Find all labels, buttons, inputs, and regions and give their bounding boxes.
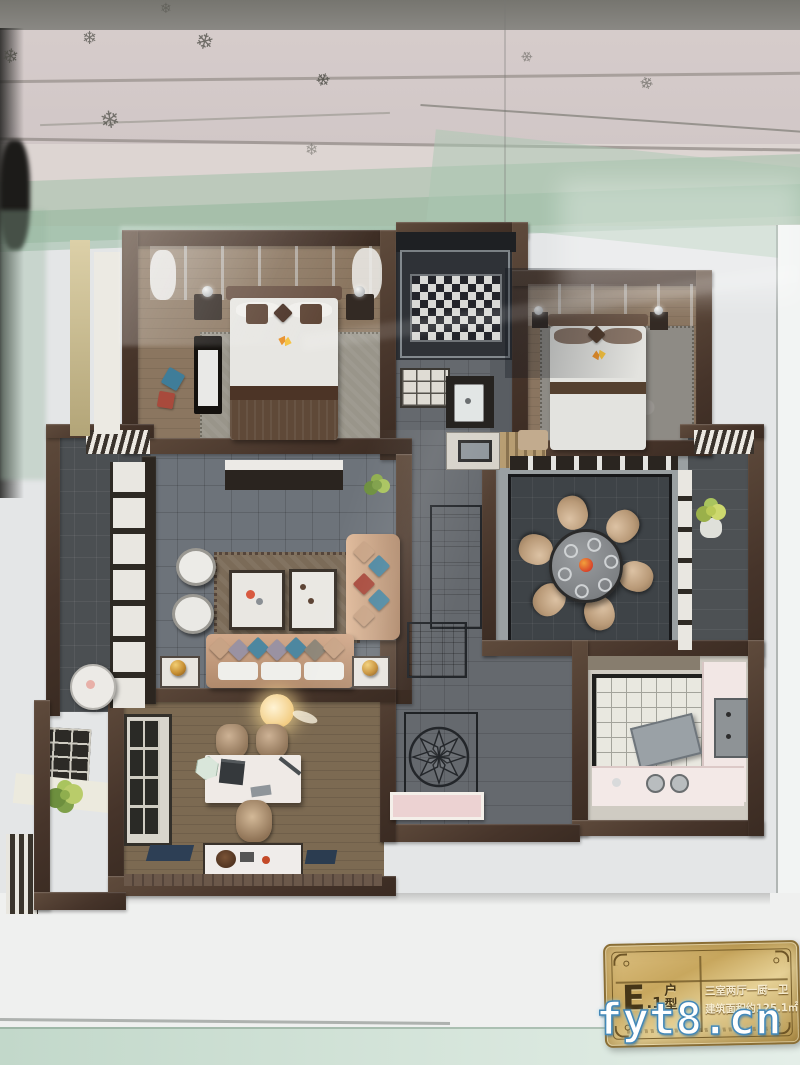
wall: [122, 438, 412, 454]
navy-storage: [305, 850, 337, 864]
bed-foot-blanket: [230, 400, 338, 440]
wall: [108, 688, 124, 892]
case-right-edge-line: [776, 225, 778, 945]
foyer-floor: [490, 650, 572, 830]
glass-joint-line: [504, 0, 506, 225]
potted-plant: [706, 506, 716, 516]
picture-frame: [458, 440, 492, 462]
bed-pillow-brown: [300, 304, 322, 324]
hall-tile-panel: [430, 505, 482, 629]
stove-burner: [646, 774, 665, 793]
round-side-table: [172, 594, 214, 634]
snowflake-icon: ❄: [98, 106, 122, 133]
kitchen-cabinet-strip: [588, 656, 700, 670]
checkerboard-tile: [410, 274, 502, 342]
faucet: [465, 398, 471, 404]
wall: [572, 640, 588, 836]
utility-window: [400, 368, 450, 408]
kitchen-counter-band: [510, 456, 678, 470]
louver-vent: [694, 430, 754, 454]
plaque-corner-ornament: [771, 950, 789, 964]
balcony-window-ladder-frame: [110, 462, 145, 708]
desk-chair: [256, 724, 288, 758]
navy-storage: [146, 845, 194, 861]
table-lamp: [354, 286, 365, 297]
table-decor: [300, 584, 306, 590]
table-lamp: [202, 286, 213, 297]
wall: [380, 230, 396, 460]
snowflake-icon: ❄: [305, 142, 318, 158]
wall: [46, 424, 60, 716]
study-window-panes: [130, 720, 160, 834]
wall: [748, 640, 764, 836]
place-setting: [586, 536, 603, 553]
potted-plant: [372, 480, 382, 490]
nightstand: [194, 294, 222, 320]
stove-burner: [670, 774, 689, 793]
case-left-green-strip: [0, 210, 46, 480]
bathroom-top-band: [396, 232, 516, 252]
watermark-text: fyt8.cn: [596, 994, 800, 1045]
balcony-window-ladder-frame: [678, 470, 692, 650]
apartment-model-display-photo: ❄ ❄ ❄ ❄ ❄ ❄ ❄ ❄ ❄: [0, 0, 800, 1065]
bench: [518, 430, 548, 450]
place-setting: [561, 541, 581, 561]
place-setting: [556, 566, 573, 583]
bed-headboard: [548, 314, 648, 326]
desk-chair: [216, 724, 248, 758]
wall: [34, 892, 126, 910]
fruit-centerpiece: [579, 558, 593, 572]
laptop: [219, 759, 245, 785]
gold-ball-decor: [362, 660, 378, 676]
wall: [380, 824, 580, 842]
sofa-seat-cushion: [218, 662, 258, 680]
wall: [572, 820, 764, 836]
appliance-knob: [726, 734, 731, 739]
round-side-table: [176, 548, 216, 586]
place-setting: [573, 583, 590, 600]
gold-ball-decor: [170, 660, 186, 676]
sofa-seat-cushion: [261, 662, 301, 680]
case-right-edge: [778, 225, 800, 945]
appliance-knob: [726, 712, 731, 717]
wall: [122, 688, 396, 702]
shelf-item-red: [262, 856, 270, 864]
wall: [122, 230, 394, 246]
wall: [482, 640, 764, 656]
bed-runner: [550, 382, 646, 394]
potted-plant: [60, 790, 70, 800]
table-lamp: [534, 306, 543, 315]
wall: [512, 222, 528, 458]
floor-medallion: [407, 725, 471, 789]
snowflake-icon: ❄: [1, 45, 20, 67]
shelf-item-grey: [240, 852, 254, 862]
right-balcony-floor: [688, 432, 752, 650]
bed-pillow: [602, 328, 642, 344]
snowflake-icon: ❄: [82, 30, 97, 48]
tv-cabinet-front: [198, 350, 218, 406]
place-setting: [595, 575, 615, 595]
wall: [34, 700, 50, 910]
hat-decor: [216, 850, 236, 868]
snowflake-icon: ❄: [160, 2, 172, 16]
exterior-gold-strip: [70, 240, 90, 436]
kitchen-appliance: [714, 698, 748, 758]
sofa-seat-cushion: [304, 662, 344, 680]
entrance-doormat: [390, 792, 484, 820]
plant-pot: [700, 518, 722, 538]
wall: [748, 424, 764, 666]
curtain: [150, 250, 176, 300]
dining-table: [549, 529, 623, 603]
desk-chair: [236, 800, 272, 842]
table-decor: [256, 598, 263, 605]
place-setting: [603, 553, 620, 570]
floor-cushion-red: [157, 391, 176, 410]
hall-tile-panel-grid: [407, 622, 467, 678]
table-decor: [308, 598, 314, 604]
table-decor: [246, 590, 255, 599]
table-decor: [86, 680, 95, 689]
bed-pillow-brown: [246, 304, 268, 324]
kitchen-item: [612, 778, 621, 787]
slat-band: [124, 874, 382, 886]
bed-runner: [230, 386, 338, 400]
wall: [482, 440, 496, 655]
ceiling-light-reflection: [260, 694, 294, 728]
media-console-top: [225, 460, 343, 470]
wall: [122, 230, 138, 452]
exterior-sill: [94, 252, 120, 434]
table-lamp: [654, 306, 663, 315]
nightstand: [346, 294, 374, 320]
plaque-corner-ornament: [613, 953, 631, 967]
